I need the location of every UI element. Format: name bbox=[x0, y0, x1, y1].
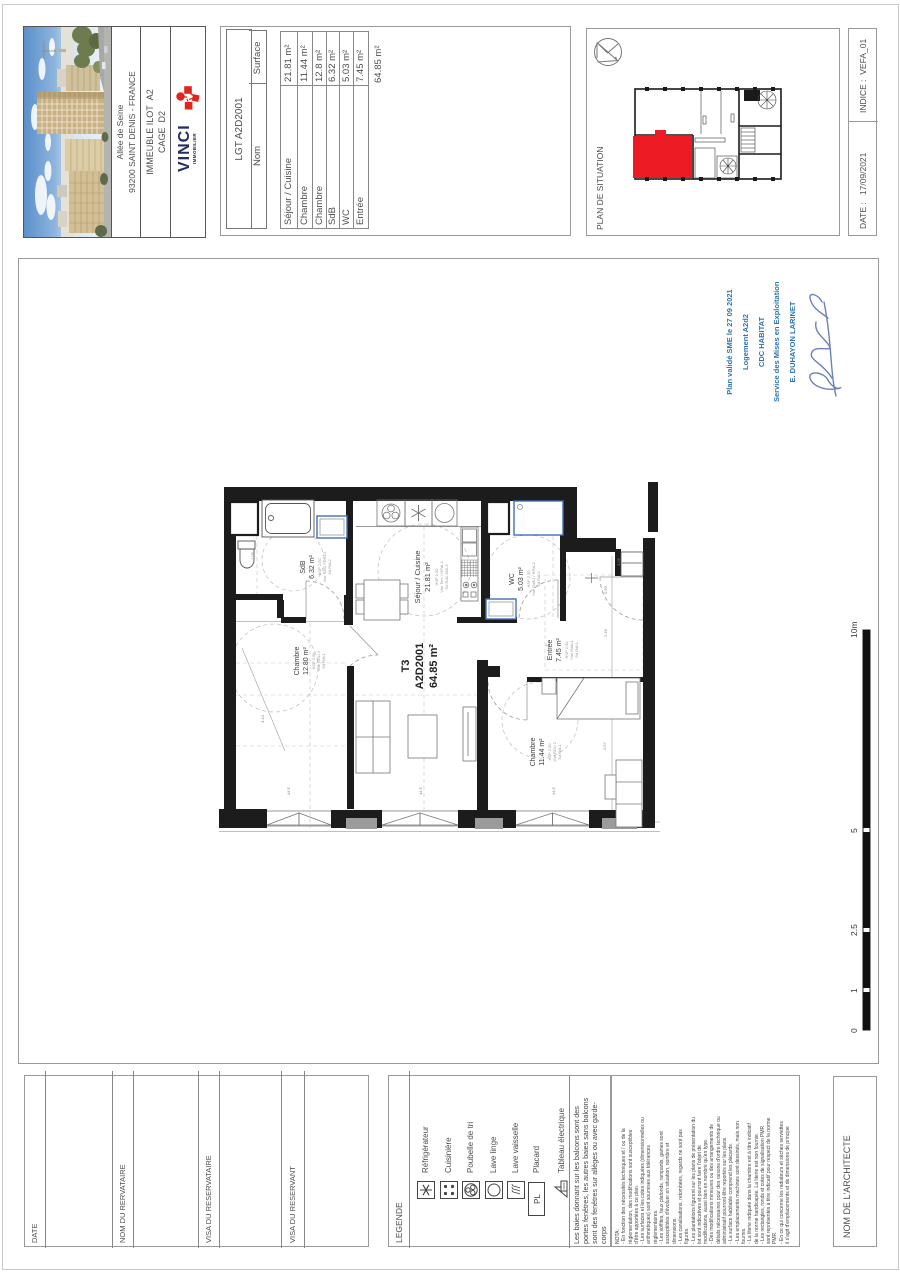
svg-text:T3: T3 bbox=[400, 660, 412, 673]
svg-text:0.90: 0.90 bbox=[603, 585, 608, 594]
svg-text:11.44 m²: 11.44 m² bbox=[539, 738, 546, 766]
svg-text:Chambre: Chambre bbox=[530, 738, 537, 767]
svg-text:2.06: 2.06 bbox=[250, 551, 255, 560]
svg-text:2.46: 2.46 bbox=[603, 628, 608, 637]
svg-text:4.44: 4.44 bbox=[260, 714, 265, 723]
svg-text:A2D2001: A2D2001 bbox=[414, 643, 426, 689]
svg-text:Séjour / Cuisine: Séjour / Cuisine bbox=[413, 551, 422, 604]
svg-text:6.32 m²: 6.32 m² bbox=[309, 554, 316, 578]
svg-text:3.06: 3.06 bbox=[616, 557, 621, 566]
svg-text:Sd RdL1: Sd RdL1 bbox=[321, 652, 326, 668]
svg-text:Sd RdL2: Sd RdL2 bbox=[327, 558, 332, 574]
svg-text:64.85 m²: 64.85 m² bbox=[428, 644, 440, 688]
svg-text:Sd RdL1: Sd RdL1 bbox=[574, 641, 579, 657]
svg-text:Entrée: Entrée bbox=[547, 640, 554, 661]
svg-text:44 E: 44 E bbox=[418, 787, 423, 796]
svg-text:0.57: 0.57 bbox=[602, 741, 607, 750]
svg-text:44 E: 44 E bbox=[286, 787, 291, 796]
svg-text:PL: PL bbox=[533, 1194, 542, 1204]
svg-text:Chambre: Chambre bbox=[294, 647, 301, 676]
svg-text:12.80 m²: 12.80 m² bbox=[303, 647, 310, 675]
svg-text:44 E: 44 E bbox=[551, 787, 556, 796]
svg-text:21.81 m²: 21.81 m² bbox=[423, 562, 432, 592]
svg-text:5.03 m²: 5.03 m² bbox=[518, 566, 525, 590]
svg-text:SdB: SdB bbox=[300, 560, 307, 574]
svg-text:Sd RdU 80/L3: Sd RdU 80/L3 bbox=[444, 564, 449, 590]
svg-text:WC: WC bbox=[509, 573, 516, 585]
svg-text:Sd RdL1: Sd RdL1 bbox=[557, 743, 562, 759]
svg-text:Sd RdL2: Sd RdL2 bbox=[536, 570, 541, 586]
svg-text:7.45 m²: 7.45 m² bbox=[556, 637, 563, 661]
